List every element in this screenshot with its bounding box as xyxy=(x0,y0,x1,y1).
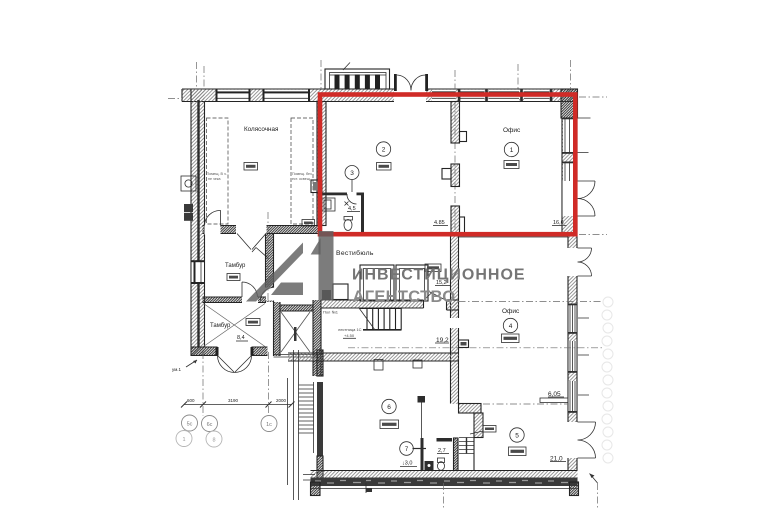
svg-text:2000: 2000 xyxy=(276,398,287,403)
svg-text:3: 3 xyxy=(350,170,354,177)
svg-text:+4.50: +4.50 xyxy=(344,333,355,338)
svg-text:↓3,0: ↓3,0 xyxy=(402,461,412,467)
svg-text:Вестибюль: Вестибюль xyxy=(336,249,374,257)
svg-text:4: 4 xyxy=(509,323,513,330)
svg-text:Пол №1: Пол №1 xyxy=(323,310,339,315)
svg-text:Тамбур: Тамбур xyxy=(210,323,231,329)
svg-text:АГЕНТСТВО: АГЕНТСТВО xyxy=(353,288,456,306)
svg-text:Помещ. В ч.: Помещ. В ч. xyxy=(207,172,227,176)
svg-text:1с: 1с xyxy=(266,422,272,428)
svg-text:Офис: Офис xyxy=(503,127,521,134)
svg-text:3190: 3190 xyxy=(228,398,239,403)
svg-text:5: 5 xyxy=(515,433,519,440)
svg-text:600: 600 xyxy=(187,398,195,403)
svg-text:1: 1 xyxy=(510,147,514,154)
svg-text:8: 8 xyxy=(212,438,215,444)
svg-text:2: 2 xyxy=(382,147,386,154)
svg-text:Тамбур: Тамбур xyxy=(225,263,246,269)
svg-text:ум.1: ум.1 xyxy=(172,367,182,372)
svg-text:ест. освещ.: ест. освещ. xyxy=(292,177,311,181)
svg-text:Колясочная: Колясочная xyxy=(244,126,278,133)
svg-text:лестница 1С: лестница 1С xyxy=(338,327,362,332)
svg-text:7: 7 xyxy=(405,447,409,453)
svg-text:1: 1 xyxy=(182,437,185,443)
svg-text:Офис: Офис xyxy=(502,308,520,315)
svg-text:5с: 5с xyxy=(187,422,193,428)
svg-text:Помещ. без: Помещ. без xyxy=(292,172,312,176)
svg-text:6: 6 xyxy=(387,404,391,411)
svg-text:8,4: 8,4 xyxy=(237,335,245,341)
svg-text:не чека: не чека xyxy=(208,177,221,181)
svg-text:6с: 6с xyxy=(207,422,213,428)
svg-text:ИНВЕСТИЦИОННОЕ: ИНВЕСТИЦИОННОЕ xyxy=(352,267,526,284)
